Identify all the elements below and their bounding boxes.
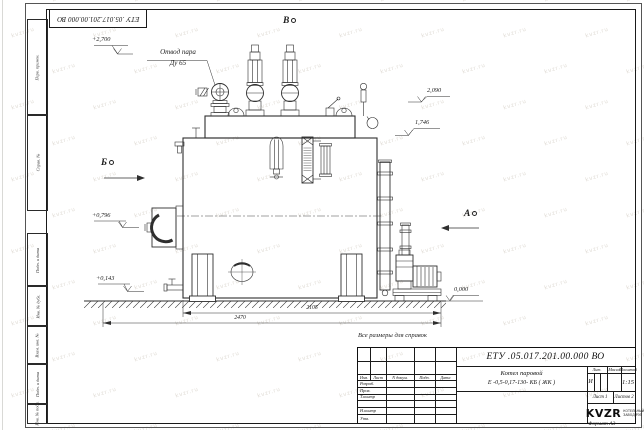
view-subscript-icon xyxy=(472,211,477,216)
tb-scale-value: 1:15 xyxy=(621,373,635,391)
view-marker-v: В xyxy=(283,17,296,27)
tb-col-doc: N докум. xyxy=(386,374,414,380)
tb-line xyxy=(358,361,456,362)
tb-doc-number: ЕТУ .05.017.201.00.000 ВО xyxy=(456,348,635,366)
view-arrows xyxy=(104,175,479,231)
drain-valve xyxy=(164,279,183,291)
burner xyxy=(145,142,184,249)
view-subscript-icon xyxy=(291,18,296,23)
tb-line xyxy=(600,373,601,391)
tb-product-line2: Е -0,5-0,17-130- КБ ( ЖК ) xyxy=(456,377,587,389)
steam-outlet-label-line1: Отвод пара xyxy=(146,49,210,56)
tb-sheets-info: Листов 2 xyxy=(613,391,635,403)
steam-outlet-label-line2: Ду 65 xyxy=(146,60,210,67)
logo-tagline: КОТЕЛЬНЫЙ ЗАВОД РЭП xyxy=(623,409,644,417)
water-level-gauge xyxy=(270,137,332,183)
view-letter: В xyxy=(283,16,289,26)
tb-line xyxy=(435,348,436,423)
safety-valve-left xyxy=(246,45,264,116)
manhole xyxy=(228,259,256,285)
view-marker-b: Б xyxy=(101,159,114,169)
dimension-overall-length: 2470 xyxy=(205,315,275,321)
tb-role-razrab: Разраб. xyxy=(358,380,388,387)
tb-lit-header: Лит. xyxy=(587,366,607,373)
view-letter: А xyxy=(464,209,470,219)
tb-col-data: Дата xyxy=(435,374,456,380)
tb-role-utv: Утв. xyxy=(358,414,388,423)
tb-role-nkontr: Н.контр xyxy=(358,407,388,414)
tb-line xyxy=(358,400,456,401)
logo-text: KVZR xyxy=(586,407,621,420)
elevation-ground: 0,000 xyxy=(454,287,468,294)
logo-tagline-line2: ЗАВОД РЭП xyxy=(623,413,644,417)
tb-line xyxy=(594,373,595,391)
view-letter: Б xyxy=(101,158,107,168)
tb-lit-value: И xyxy=(587,373,594,391)
view-subscript-icon xyxy=(109,160,114,165)
kvzr-logo: KVZR КОТЕЛЬНЫЙ ЗАВОД РЭП xyxy=(587,403,635,423)
safety-valve-right xyxy=(281,45,299,116)
elevation-base: +0,143 xyxy=(96,276,114,283)
support-legs xyxy=(190,254,365,302)
tb-col-podp: Подп. xyxy=(414,374,435,380)
feed-pump xyxy=(393,223,441,301)
tb-sheet-info: Лист 1 xyxy=(587,391,613,403)
elevation-top: +2,700 xyxy=(92,37,110,44)
external-column xyxy=(378,160,393,296)
tb-scale-header: Масштаб xyxy=(621,366,635,373)
steam-outlet-valve xyxy=(196,84,229,117)
elevation-drum: 1,746 xyxy=(415,120,429,127)
title-block: Изм. Лист N докум. Подп. Дата Разраб. Пр… xyxy=(357,347,636,424)
drawing-sheet: kvzr.rukvzr.rukvzr.rukvzr.rukvzr.rukvzr.… xyxy=(0,0,644,430)
leader-lines xyxy=(94,46,479,302)
view-marker-a: А xyxy=(464,210,477,220)
reference-note: Все размеры для справок xyxy=(358,333,427,340)
tb-line xyxy=(414,348,415,423)
elevation-burner: +0,796 xyxy=(92,213,110,220)
elevation-stack: 2,090 xyxy=(427,88,441,95)
tb-role-tkontr: Т.контр xyxy=(358,394,388,401)
dimension-body-length: 2105 xyxy=(277,305,347,311)
